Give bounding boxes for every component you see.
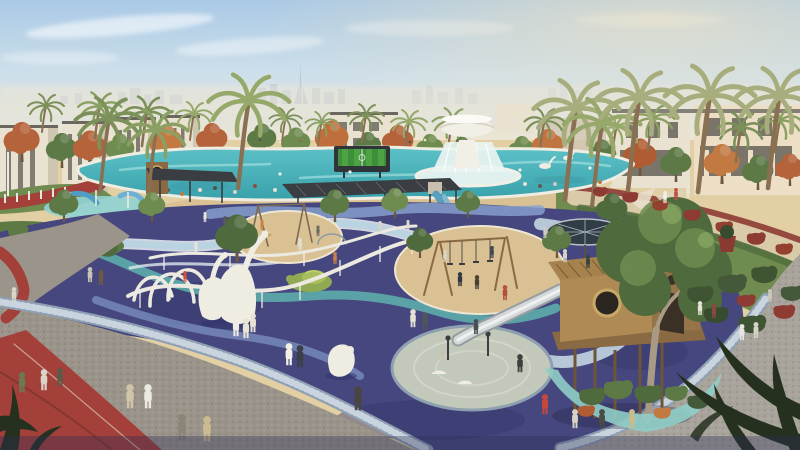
crowd-person-dot [198,188,202,192]
crowd-person-dot [518,168,521,171]
crowd-person-dot [348,170,351,173]
park-rendering [0,0,800,450]
crowd-person-dot [279,141,282,144]
crowd-person-dot [253,184,257,188]
planter-pot [718,225,736,252]
crowd-person-dot [598,180,602,184]
crowd-person-dot [180,192,184,196]
park-rendering-canvas [0,0,800,450]
crowd-person-dot [273,188,277,192]
crowd-person-dot [588,166,591,169]
crowd-person-dot [553,182,557,186]
crowd-person-dot [213,186,217,190]
crowd-person-dot [233,190,237,194]
crowd-person-dot [448,170,451,173]
crowd-person-dot [299,140,302,143]
crowd-person-dot [610,184,614,188]
crowd-person-dot [278,172,281,175]
crowd-person-dot [523,182,527,186]
crowd-person-dot [409,141,412,144]
light-pole [7,152,9,196]
crowd-person-dot [538,184,542,188]
bottom-shadow [0,436,800,450]
crowd-person-dot [259,139,262,142]
crowd-person-dot [424,139,427,142]
porthole-window [594,290,620,316]
